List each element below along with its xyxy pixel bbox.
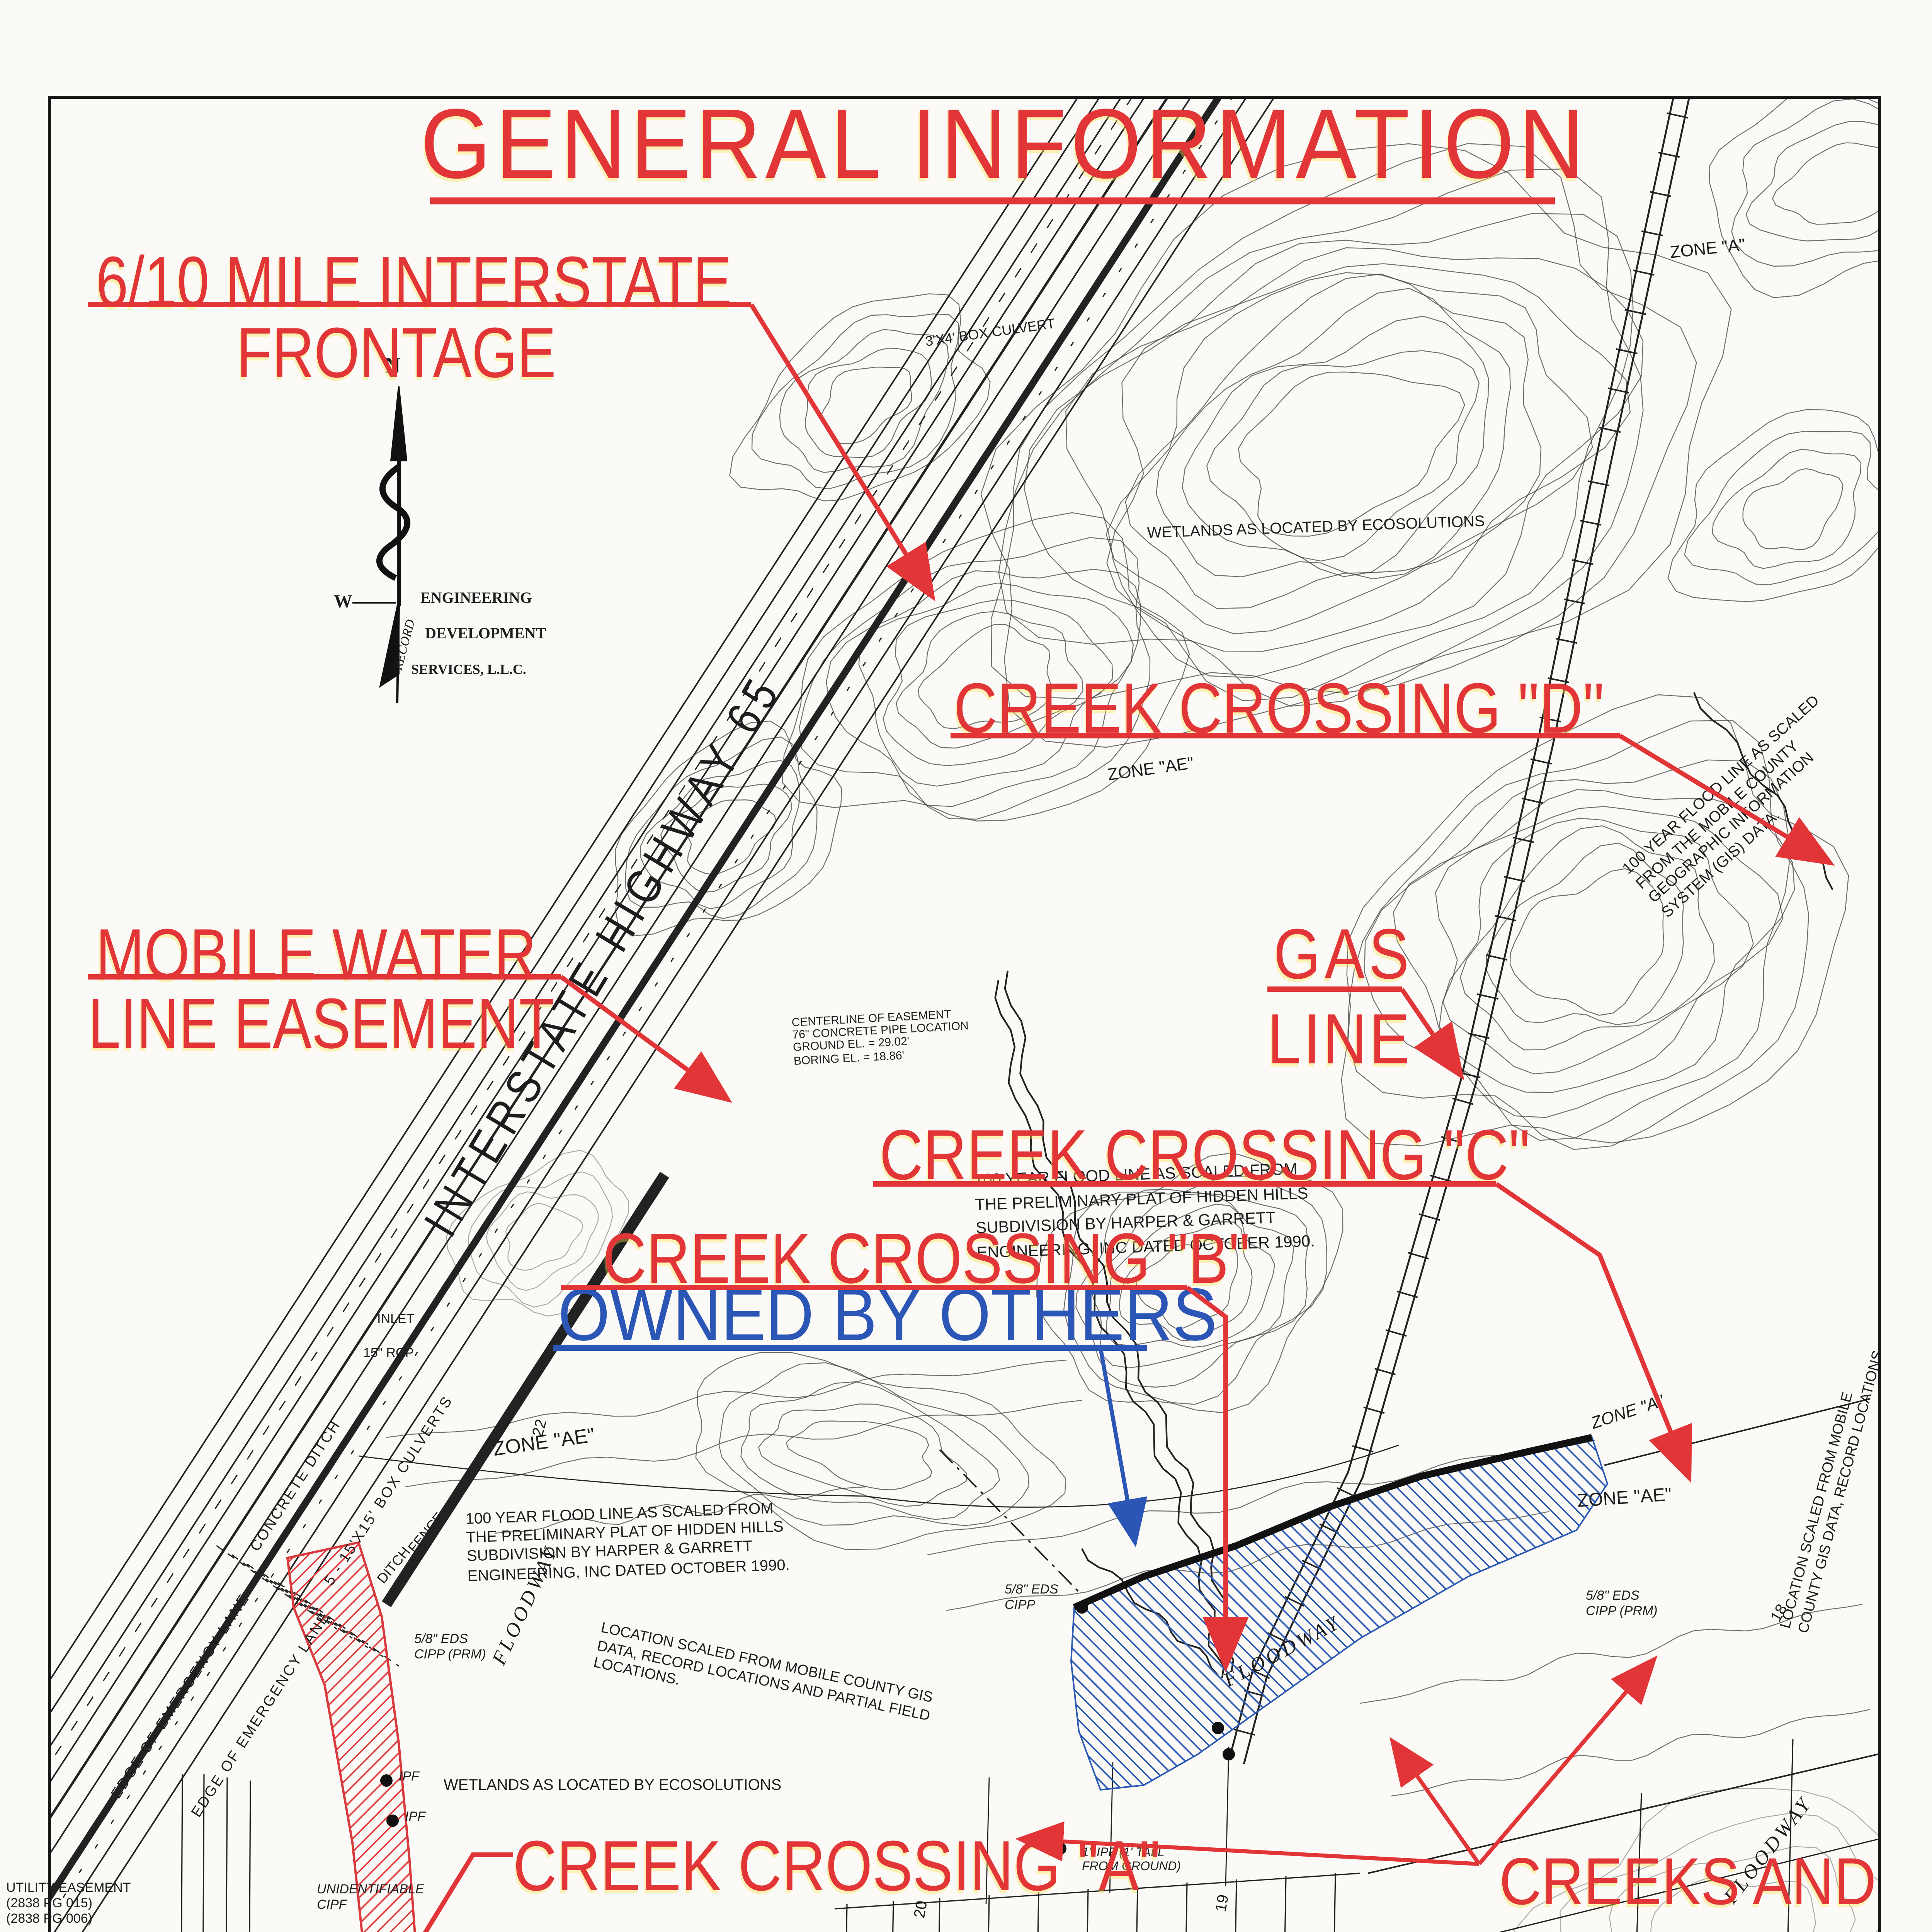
annotation-leaders [0, 0, 1932, 1932]
scanned-survey-page: INTERSTATE HIGHWAY 65 SARALAND, ALABAMA … [0, 0, 1932, 1932]
